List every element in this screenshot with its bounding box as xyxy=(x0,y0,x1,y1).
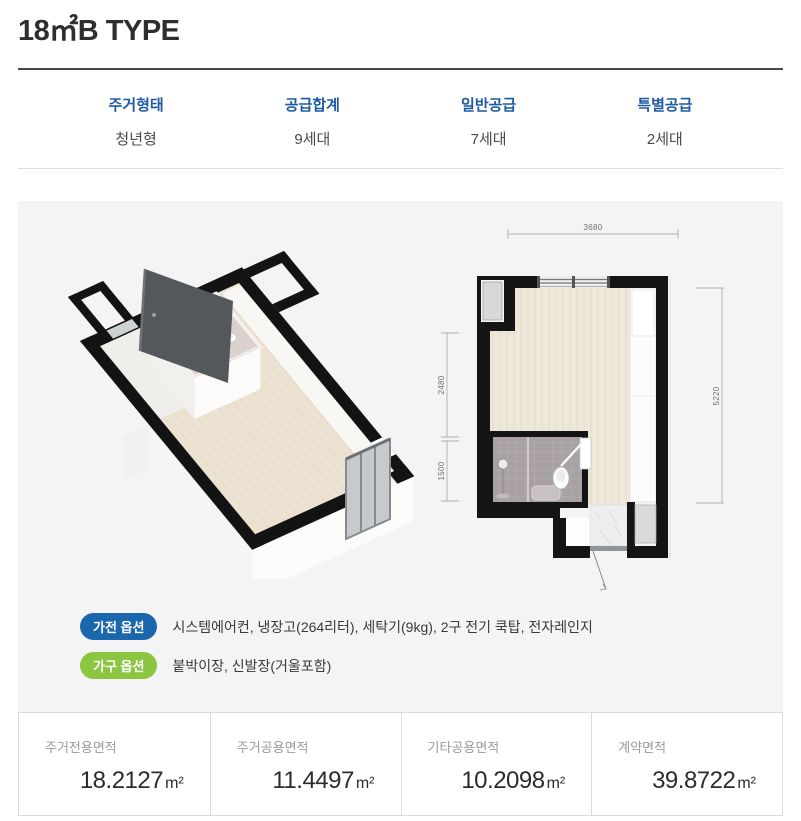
ac-unit xyxy=(483,282,502,320)
summary-col-housing-type: 주거형태 청년형 xyxy=(48,94,224,149)
entry-door-swing xyxy=(593,551,606,590)
column-value: 청년형 xyxy=(48,128,224,149)
unit-type-section: 18㎡B TYPE 주거형태 청년형 공급합계 9세대 일반공급 7세대 특별공… xyxy=(0,0,801,821)
card-label: 기타공용면적 xyxy=(428,737,566,756)
supply-summary-table: 주거형태 청년형 공급합계 9세대 일반공급 7세대 특별공급 2세대 xyxy=(18,70,783,168)
column-header: 특별공급 xyxy=(577,94,753,115)
dim-left-lower-label: 1500 xyxy=(437,461,446,480)
card-contract-area: 계약면적 39.8722m² xyxy=(591,713,782,815)
furniture-option-items: 붙박이장, 신발장(거울포함) xyxy=(172,656,331,676)
card-other-common-area: 기타공용면적 10.2098m² xyxy=(401,713,592,815)
summary-col-special-supply: 특별공급 2세대 xyxy=(577,94,753,149)
column-header: 일반공급 xyxy=(401,94,577,115)
dim-right-label: 5220 xyxy=(712,386,721,405)
column-value: 7세대 xyxy=(401,128,577,149)
options-list: 가전 옵션 시스템에어컨, 냉장고(264리터), 세탁기(9kg), 2구 전… xyxy=(80,613,593,691)
card-value: 10.2098m² xyxy=(428,767,566,795)
card-value: 39.8722m² xyxy=(618,767,756,795)
area-summary-cards: 주거전용면적 18.2127m² 주거공용면적 11.4497m² 기타공용면적… xyxy=(18,712,783,816)
floorplan-panel: 3680 2480 1500 5220 가전 옵션 시스템에어컨, 냉장고(26… xyxy=(18,201,783,712)
card-label: 계약면적 xyxy=(618,737,756,756)
summary-col-general-supply: 일반공급 7세대 xyxy=(401,94,577,149)
card-value: 18.2127m² xyxy=(45,767,184,795)
option-row-furniture: 가구 옵션 붙박이장, 신발장(거울포함) xyxy=(80,652,593,679)
divider-light xyxy=(18,168,783,169)
column-header: 주거형태 xyxy=(48,94,224,115)
appliance-option-badge: 가전 옵션 xyxy=(80,613,157,640)
sink-2d xyxy=(498,459,508,469)
column-header: 공급합계 xyxy=(224,94,400,115)
card-label: 주거공용면적 xyxy=(237,737,375,756)
window-2d xyxy=(537,276,610,288)
page-title: 18㎡B TYPE xyxy=(18,14,783,48)
tub-2d xyxy=(532,486,560,500)
shoe-cabinet xyxy=(635,505,656,543)
summary-col-supply-total: 공급합계 9세대 xyxy=(224,94,400,149)
floorplan-3d-view xyxy=(58,229,438,579)
column-value: 2세대 xyxy=(577,128,753,149)
card-residential-common-area: 주거공용면적 11.4497m² xyxy=(210,713,401,815)
dim-left-upper-label: 2480 xyxy=(437,375,446,394)
floorplan-2d-view: 3680 2480 1500 5220 xyxy=(433,206,783,606)
card-value: 11.4497m² xyxy=(237,767,375,795)
card-exclusive-area: 주거전용면적 18.2127m² xyxy=(19,713,210,815)
bathroom-2d xyxy=(490,434,591,505)
column-value: 9세대 xyxy=(224,128,400,149)
dim-top-label: 3680 xyxy=(584,223,603,232)
card-label: 주거전용면적 xyxy=(45,737,184,756)
furniture-option-badge: 가구 옵션 xyxy=(80,652,157,679)
option-row-appliance: 가전 옵션 시스템에어컨, 냉장고(264리터), 세탁기(9kg), 2구 전… xyxy=(80,613,593,640)
entry-2d xyxy=(566,505,627,551)
appliance-option-items: 시스템에어컨, 냉장고(264리터), 세탁기(9kg), 2구 전기 쿡탑, … xyxy=(172,617,592,637)
closet-2d xyxy=(630,288,656,502)
